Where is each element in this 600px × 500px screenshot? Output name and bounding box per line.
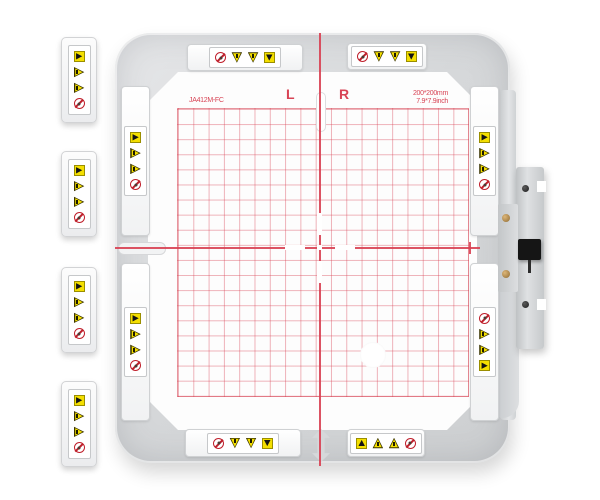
hazard-square-icon [406, 51, 417, 62]
warning-triangle-icon [479, 344, 490, 355]
prohibition-icon [130, 179, 141, 190]
prohibition-icon [479, 179, 490, 190]
warning-label [68, 389, 91, 459]
hazard-square-icon [479, 132, 490, 143]
bracket-knob [518, 239, 541, 260]
warning-sticker-3 [61, 267, 97, 353]
grid-template [177, 108, 469, 397]
warning-triangle-icon [74, 82, 85, 93]
hazard-square-icon [74, 395, 85, 406]
bracket-notch [537, 299, 546, 310]
clamp-bar-bottom-left [185, 429, 301, 457]
warning-triangle-icon [390, 51, 401, 62]
warning-label [350, 433, 422, 454]
warning-label [209, 47, 281, 68]
right-mark-label: R [339, 86, 349, 102]
prohibition-icon [74, 442, 85, 453]
template-hole [360, 342, 386, 368]
warning-label [124, 307, 147, 377]
warning-label [124, 126, 147, 196]
prohibition-icon [215, 52, 226, 63]
hazard-square-icon [264, 52, 275, 63]
prohibition-icon [213, 438, 224, 449]
top-center-notch [316, 92, 326, 132]
warning-triangle-icon [74, 196, 85, 207]
prohibition-icon [405, 438, 416, 449]
clamp-bar-right-bottom [470, 263, 499, 421]
left-mark-label: L [286, 86, 295, 102]
product-photo-embroidery-hoop: L R JA412M-FC 200*200mm 7.9*7.9inch [0, 0, 600, 500]
warning-triangle-icon [74, 426, 85, 437]
hazard-square-icon [74, 51, 85, 62]
warning-triangle-icon [130, 344, 141, 355]
centerline-tick [469, 242, 471, 254]
warning-triangle-icon [231, 52, 242, 63]
warning-triangle-icon [479, 148, 490, 159]
clamp-bar-top-left [187, 44, 303, 71]
center-mark-bottom [317, 261, 322, 283]
model-number-label: JA412M-FC [189, 97, 224, 104]
hazard-square-icon [262, 438, 273, 449]
prohibition-icon [130, 360, 141, 371]
brass-screw-icon [502, 214, 510, 222]
warning-triangle-icon [130, 329, 141, 340]
screw-icon [522, 185, 529, 192]
center-mark-top [317, 213, 322, 235]
warning-sticker-4 [61, 381, 97, 467]
warning-triangle-icon [74, 297, 85, 308]
prohibition-icon [74, 328, 85, 339]
size-inch-label: 7.9*7.9inch [398, 98, 448, 106]
clamp-bar-top-right [347, 43, 427, 70]
bracket-notch [537, 181, 546, 192]
warning-label [351, 46, 423, 67]
hazard-square-icon [74, 281, 85, 292]
warning-label [473, 126, 496, 196]
center-mark-left [285, 245, 305, 250]
prohibition-icon [479, 313, 490, 324]
bracket-knob-stem [528, 260, 531, 273]
prohibition-icon [357, 51, 368, 62]
warning-triangle-icon [479, 163, 490, 174]
warning-label [68, 45, 91, 115]
warning-sticker-2 [61, 151, 97, 237]
warning-label [68, 159, 91, 229]
hazard-square-icon [74, 165, 85, 176]
hazard-square-icon [479, 360, 490, 371]
hazard-square-icon [130, 132, 141, 143]
warning-triangle-icon [130, 163, 141, 174]
warning-triangle-icon [130, 148, 141, 159]
clamp-bar-left-bottom [121, 263, 150, 421]
warning-triangle-icon [246, 438, 257, 449]
prohibition-icon [74, 212, 85, 223]
warning-label [68, 275, 91, 345]
warning-triangle-icon [74, 312, 85, 323]
clamp-bar-bottom-right [347, 429, 425, 457]
warning-label [207, 433, 279, 454]
warning-sticker-1 [61, 37, 97, 123]
clamp-bar-left-top [121, 86, 150, 236]
warning-triangle-icon [248, 52, 259, 63]
brass-screw-icon [502, 270, 510, 278]
clamp-bar-right-top [470, 86, 499, 236]
center-mark-middle [317, 245, 322, 250]
size-mm-label: 200*200mm [398, 90, 448, 98]
warning-triangle-icon [372, 438, 383, 449]
warning-triangle-icon [479, 329, 490, 340]
hazard-square-icon [356, 438, 367, 449]
warning-triangle-icon [373, 51, 384, 62]
warning-triangle-icon [229, 438, 240, 449]
warning-triangle-icon [74, 411, 85, 422]
screw-icon [522, 301, 529, 308]
hazard-square-icon [130, 313, 141, 324]
warning-triangle-icon [389, 438, 400, 449]
hoop-size-label: 200*200mm 7.9*7.9inch [398, 90, 448, 105]
center-mark-right [335, 245, 355, 250]
warning-triangle-icon [74, 67, 85, 78]
warning-triangle-icon [74, 181, 85, 192]
prohibition-icon [74, 98, 85, 109]
warning-label [473, 307, 496, 377]
